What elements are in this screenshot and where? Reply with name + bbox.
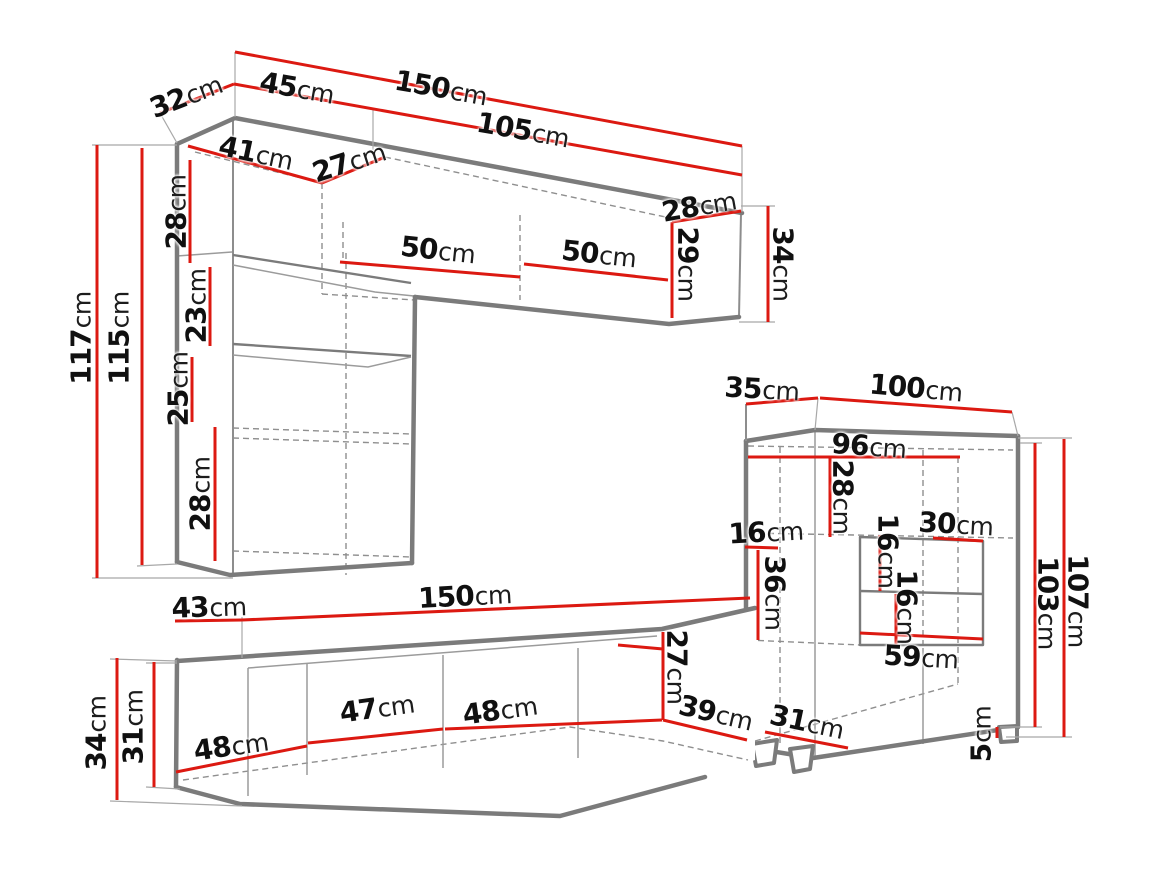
cabinet-leg-right (790, 746, 813, 772)
cabinet-leg-left (752, 740, 777, 766)
tv-stand (176, 608, 755, 816)
top-wall-unit (177, 118, 742, 575)
right-cabinet (746, 430, 1018, 772)
diagram-drawing (0, 0, 1159, 869)
cabinet-foot-right (999, 726, 1017, 742)
furniture-dimension-diagram: 32cm 45cm 150cm 105cm 41cm 27cm 28cm 23c… (0, 0, 1159, 869)
